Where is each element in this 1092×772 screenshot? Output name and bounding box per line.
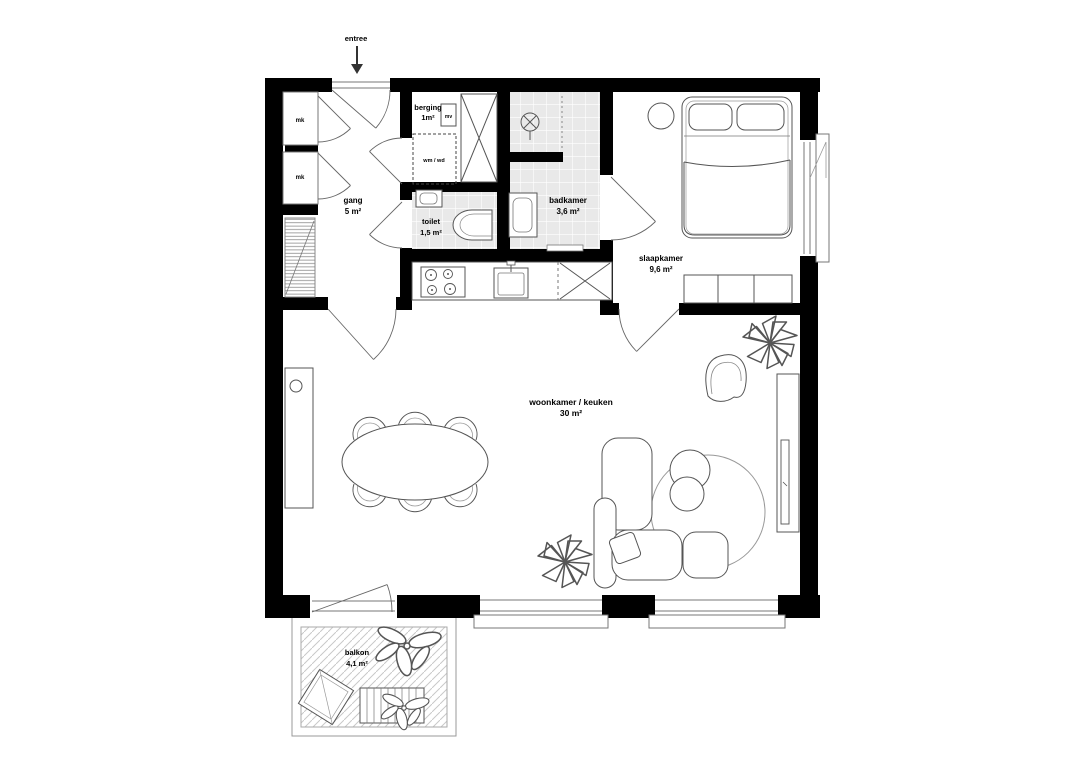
dining-set	[342, 412, 488, 511]
room-name: toilet	[422, 217, 440, 226]
bedroom-door	[619, 309, 679, 351]
room-name: berging	[414, 103, 442, 112]
window-living-left	[474, 595, 608, 628]
room-name: balkon	[345, 648, 370, 657]
room-name: gang	[343, 196, 362, 205]
coffee-table-small	[670, 477, 704, 511]
tv-cabinet	[777, 374, 799, 532]
armchair	[706, 355, 746, 402]
window-living-right	[649, 595, 785, 628]
entrance-arrow	[351, 46, 363, 74]
room-label-slaapkamer: slaapkamer 9,6 m²	[639, 254, 683, 274]
radiator-hall	[285, 218, 315, 297]
bathroom-washbasin	[509, 193, 537, 237]
plant-living-corner	[743, 316, 797, 369]
window-bedroom	[800, 134, 829, 262]
room-label-berging: berging 1m²	[414, 103, 442, 122]
plant-living-sofa	[538, 535, 592, 588]
room-area: 1,5 m²	[420, 228, 442, 237]
shaft-x	[461, 94, 497, 182]
room-area: 9,6 m²	[649, 265, 672, 274]
entrance-door	[332, 90, 390, 128]
room-area: 5 m²	[345, 207, 362, 216]
toilet-washbasin	[416, 190, 442, 207]
room-area: 4,1 m²	[346, 659, 368, 668]
toilet-door	[370, 202, 403, 248]
nightstand	[648, 103, 674, 129]
lounge-set	[594, 438, 765, 588]
vent-unit-label: mv	[445, 114, 452, 120]
floor-plan-drawing: entree mk mk mv wm / wd berging 1m² gang…	[0, 0, 1092, 772]
room-label-woonkamer: woonkamer / keuken 30 m²	[528, 397, 613, 418]
closet-top-label: mk	[296, 118, 305, 124]
room-area: 3,6 m²	[556, 207, 579, 216]
room-label-gang: gang 5 m²	[343, 196, 362, 216]
pillow-left	[689, 104, 732, 130]
hall-living-door	[328, 309, 396, 360]
closet-bottom-door	[318, 153, 351, 199]
closet-top-door	[318, 96, 351, 142]
bathroom-door	[611, 177, 656, 240]
bathroom-mat	[547, 245, 583, 251]
wardrobe	[684, 275, 792, 303]
room-area: 30 m²	[560, 408, 582, 418]
room-name: woonkamer / keuken	[528, 397, 613, 407]
room-name: badkamer	[549, 196, 587, 205]
sofa-cushion	[683, 532, 728, 578]
room-area: 1m²	[421, 113, 435, 122]
floor-plan: entree mk mk mv wm / wd berging 1m² gang…	[0, 0, 1092, 772]
balcony-door-threshold	[310, 595, 397, 618]
storage-door	[370, 138, 403, 184]
closet-bottom-label: mk	[296, 175, 305, 181]
room-name: slaapkamer	[639, 254, 683, 263]
dining-table	[342, 424, 488, 500]
washer-dryer-label: wm / wd	[422, 158, 444, 164]
entrance-label: entree	[345, 34, 368, 43]
toilet-bowl	[453, 210, 492, 240]
bed	[682, 97, 792, 238]
pillow-right	[737, 104, 784, 130]
cooktop	[421, 267, 465, 297]
radiator-living	[285, 368, 313, 508]
entrance-threshold	[332, 78, 390, 92]
